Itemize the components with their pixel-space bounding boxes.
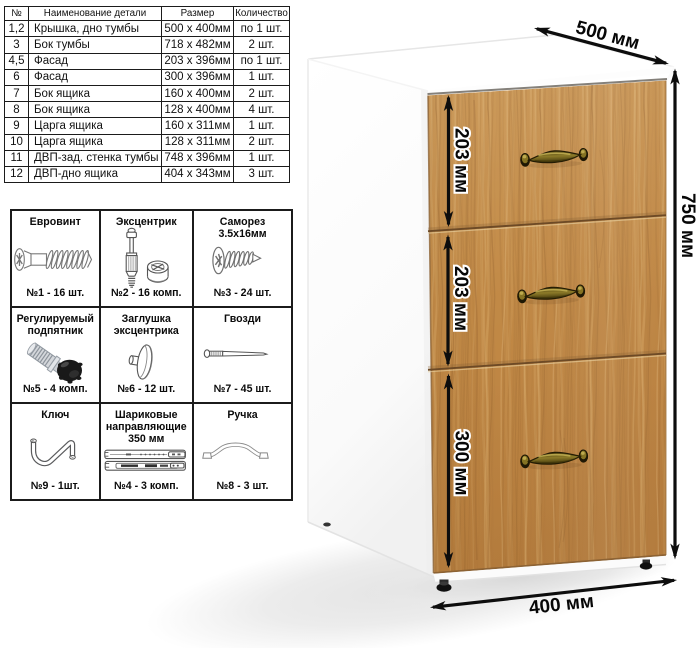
svg-text:750 мм: 750 мм bbox=[677, 193, 698, 258]
svg-text:500 мм: 500 мм bbox=[573, 17, 641, 54]
svg-text:400 мм: 400 мм bbox=[528, 591, 595, 619]
svg-text:203 мм: 203 мм bbox=[450, 266, 471, 331]
svg-text:203 мм: 203 мм bbox=[451, 128, 472, 193]
svg-text:300 мм: 300 мм bbox=[451, 430, 472, 495]
